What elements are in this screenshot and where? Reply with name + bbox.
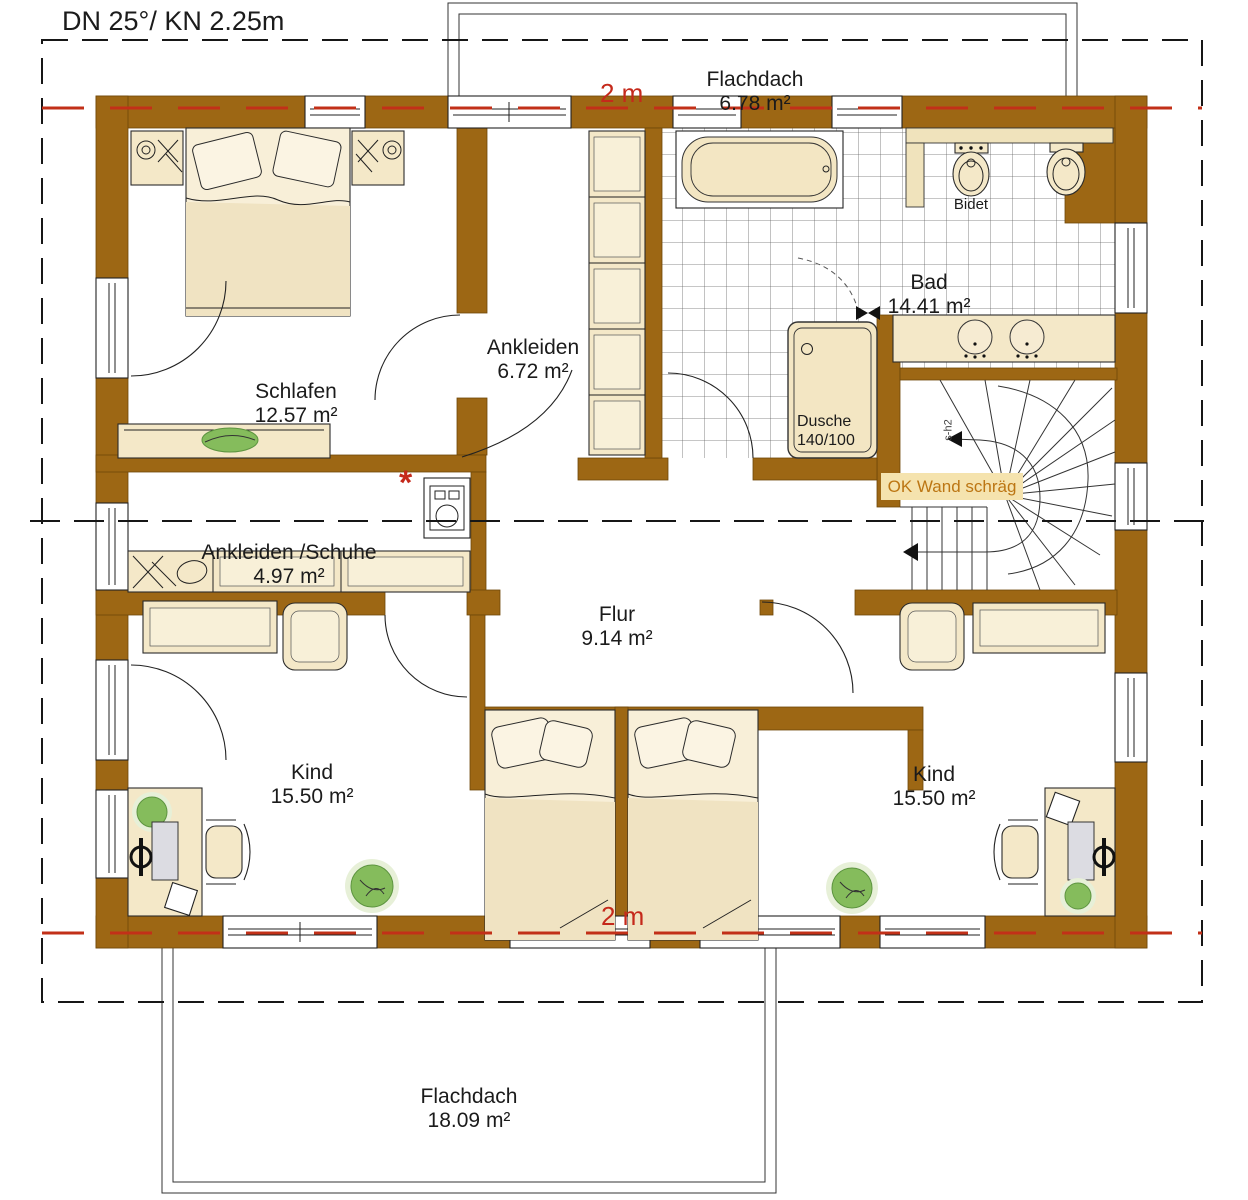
wardrobe-ankleiden <box>589 131 645 455</box>
desk-chair-kid-left <box>206 820 250 884</box>
roof-label-bottom: Flachdach18.09 m² <box>421 1037 518 1181</box>
room-label-ankleiden: Ankleiden6.72 m² <box>487 288 579 432</box>
floor-plant-kid-left <box>345 859 399 913</box>
armchair-kid-right <box>900 603 964 670</box>
bidet-label: Bidet <box>954 196 988 213</box>
required-marker: * <box>399 466 412 500</box>
room-label-flur: Flur9.14 m² <box>581 555 652 699</box>
nightstand-left <box>131 131 183 185</box>
stair-note-ok-wand-schraeg: OK Wand schräg <box>881 473 1023 500</box>
nightstand-right <box>352 131 404 185</box>
desk-kid-left <box>128 788 202 916</box>
double-bed <box>186 128 350 316</box>
stair-code-label: s-h2 <box>943 419 955 440</box>
laundry-appliance <box>424 478 470 538</box>
kid-bed-left <box>485 710 615 940</box>
bidet <box>953 143 989 196</box>
room-label-ankleiden-schuhe: Ankleiden /Schuhe4.97 m² <box>201 493 376 637</box>
floor-plant-kid-right <box>826 862 878 914</box>
desk-chair-kid-right <box>994 820 1038 884</box>
dimension-mark-top: 2 m <box>600 80 643 106</box>
plan-title: DN 25°/ KN 2.25m <box>62 6 284 36</box>
room-label-bad: Bad14.41 m² <box>888 223 971 367</box>
desk-kid-right <box>1045 788 1115 916</box>
room-label-kind-right: Kind15.50 m² <box>893 715 976 859</box>
roof-label-top: Flachdach6.78 m² <box>707 20 804 164</box>
room-label-schlafen: Schlafen12.57 m² <box>255 332 338 476</box>
room-label-kind-left: Kind15.50 m² <box>271 713 354 857</box>
floor-plan: DN 25°/ KN 2.25m Flachdach6.78 m² Flachd… <box>0 0 1248 1200</box>
dimension-mark-bottom: 2 m <box>601 903 644 929</box>
sideboard-kid-right <box>973 603 1105 653</box>
toilet <box>1047 143 1085 195</box>
kid-bed-right <box>628 710 758 940</box>
shower-label: Dusche140/100 <box>797 374 855 488</box>
